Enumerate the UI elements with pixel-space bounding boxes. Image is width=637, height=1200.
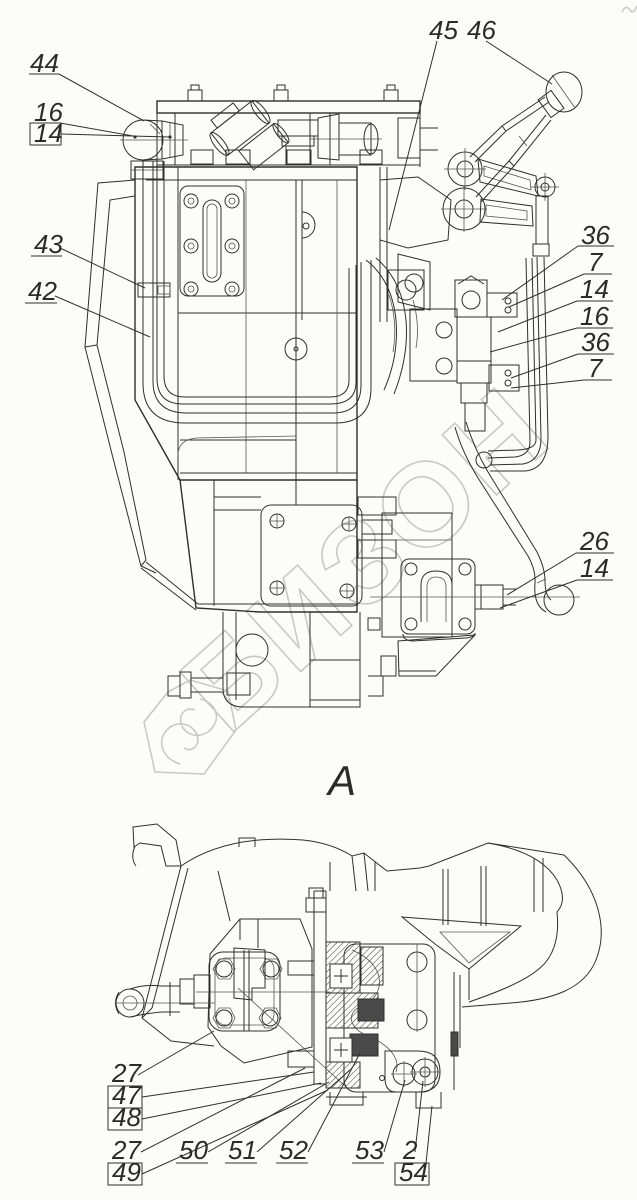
svg-text:45: 45: [429, 15, 458, 45]
svg-text:26: 26: [579, 526, 609, 556]
svg-text:7: 7: [588, 353, 604, 383]
svg-text:14: 14: [580, 553, 609, 583]
svg-text:48: 48: [112, 1102, 141, 1132]
svg-text:7: 7: [588, 247, 604, 277]
svg-text:A: A: [325, 757, 356, 804]
svg-text:52: 52: [279, 1135, 308, 1165]
svg-text:51: 51: [228, 1135, 257, 1165]
svg-text:14: 14: [580, 274, 609, 304]
svg-text:14: 14: [34, 118, 63, 148]
svg-text:42: 42: [28, 276, 57, 306]
svg-text:46: 46: [467, 15, 496, 45]
svg-text:49: 49: [112, 1157, 141, 1187]
svg-text:50: 50: [179, 1135, 208, 1165]
svg-text:54: 54: [399, 1157, 428, 1187]
svg-text:53: 53: [355, 1135, 384, 1165]
svg-text:43: 43: [34, 229, 63, 259]
